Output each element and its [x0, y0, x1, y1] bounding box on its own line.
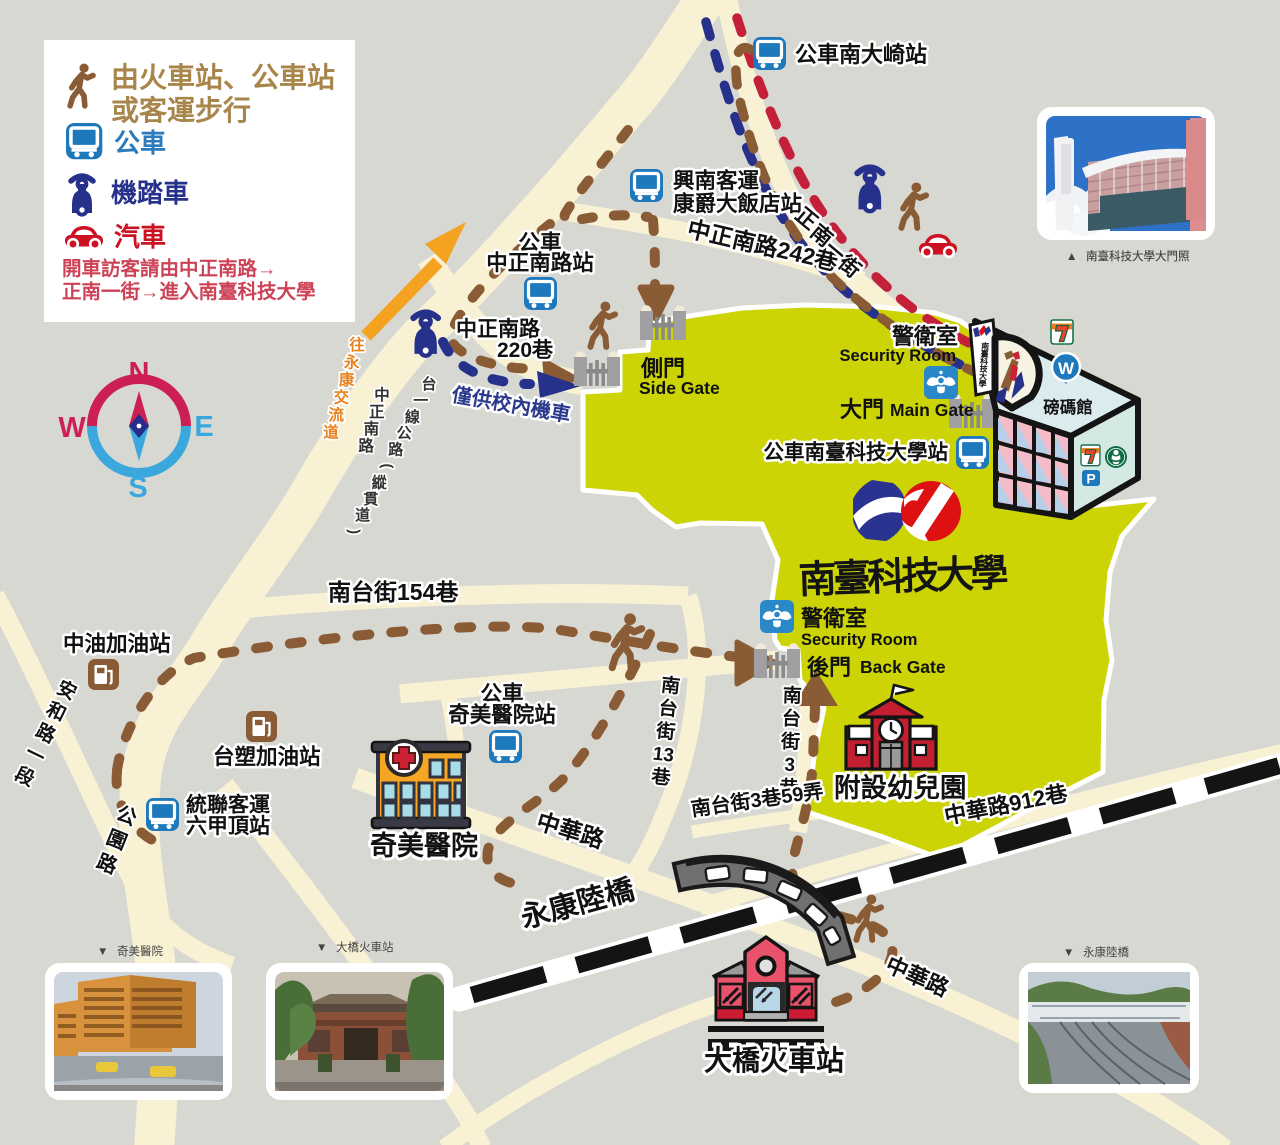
- svg-text:奇美醫院: 奇美醫院: [117, 944, 163, 958]
- svg-text:興南客運: 興南客運: [673, 168, 760, 193]
- svg-text:Side Gate: Side Gate: [639, 378, 720, 398]
- svg-text:奇美醫院: 奇美醫院: [370, 830, 478, 861]
- svg-text:街: 街: [780, 730, 801, 754]
- svg-text:▼: ▼: [316, 942, 327, 954]
- svg-text:▲: ▲: [1066, 251, 1077, 263]
- svg-text:南臺科技大學: 南臺科技大學: [798, 553, 1009, 602]
- svg-text:220巷: 220巷: [497, 338, 554, 362]
- svg-text:南: 南: [782, 685, 802, 708]
- svg-text:奇美醫院站: 奇美醫院站: [448, 702, 556, 727]
- svg-text:▼: ▼: [1063, 947, 1074, 959]
- svg-text:大門: 大門: [840, 397, 884, 422]
- svg-text:中: 中: [374, 385, 390, 404]
- svg-text:警衛室: 警衛室: [891, 324, 958, 349]
- svg-text:N: N: [129, 357, 150, 389]
- svg-text:Back Gate: Back Gate: [860, 657, 946, 677]
- svg-text:南: 南: [364, 419, 380, 438]
- svg-text:公車南大崎站: 公車南大崎站: [795, 42, 927, 67]
- svg-text:警衛室: 警衛室: [800, 606, 867, 631]
- svg-text:永: 永: [343, 353, 360, 372]
- svg-text:道: 道: [355, 506, 370, 524]
- svg-text:大橋火車站: 大橋火車站: [336, 940, 394, 954]
- svg-text:大橋火車站: 大橋火車站: [704, 1045, 844, 1076]
- svg-text:巷: 巷: [649, 765, 672, 789]
- svg-text:或客運步行: 或客運步行: [111, 94, 251, 126]
- svg-text:南臺科技大學大門照: 南臺科技大學大門照: [1086, 249, 1190, 263]
- svg-text:S: S: [128, 472, 147, 504]
- svg-text:公: 公: [397, 425, 412, 442]
- svg-text:統聯客運: 統聯客運: [186, 793, 270, 817]
- svg-text:磅碼館: 磅碼館: [1043, 397, 1093, 417]
- svg-text:P: P: [1086, 471, 1095, 487]
- svg-text:E: E: [194, 411, 213, 443]
- svg-text:3: 3: [784, 755, 795, 776]
- svg-text:貫: 貫: [363, 490, 378, 508]
- svg-text:▼: ▼: [97, 946, 108, 958]
- svg-text:學: 學: [978, 378, 987, 389]
- svg-text:W: W: [58, 412, 86, 444]
- svg-text:開車訪客請由中正南路→: 開車訪客請由中正南路→: [62, 257, 277, 280]
- svg-text:正南一街→進入南臺科技大學: 正南一街→進入南臺科技大學: [62, 280, 316, 303]
- svg-text:路: 路: [388, 441, 404, 459]
- svg-text:六甲頂站: 六甲頂站: [186, 814, 270, 838]
- svg-text:線: 線: [405, 408, 420, 426]
- svg-text:台: 台: [782, 707, 802, 731]
- svg-text:縱: 縱: [372, 473, 388, 491]
- svg-text:附設幼兒園: 附設幼兒園: [834, 773, 967, 803]
- svg-text:機踏車: 機踏車: [111, 178, 189, 208]
- svg-text:台: 台: [658, 696, 679, 721]
- svg-text:南台街154巷: 南台街154巷: [328, 579, 459, 605]
- svg-text:往: 往: [349, 335, 365, 354]
- svg-text:W: W: [1058, 359, 1075, 378]
- svg-text:南: 南: [660, 674, 681, 698]
- svg-text:): ): [345, 529, 362, 534]
- svg-text:正: 正: [369, 404, 385, 421]
- svg-text:台: 台: [421, 375, 436, 393]
- svg-text:公車: 公車: [114, 128, 166, 158]
- svg-text:交: 交: [334, 388, 350, 407]
- svg-text:(: (: [379, 464, 396, 469]
- svg-text:康: 康: [339, 370, 355, 389]
- svg-text:Security Room: Security Room: [801, 631, 917, 649]
- svg-text:中油加油站: 中油加油站: [63, 632, 171, 656]
- svg-text:汽車: 汽車: [114, 222, 166, 252]
- svg-text:中正南路: 中正南路: [456, 317, 541, 341]
- svg-text:後門: 後門: [807, 655, 851, 680]
- svg-text:Main Gate: Main Gate: [890, 400, 974, 420]
- svg-text:街: 街: [654, 719, 676, 744]
- svg-text:道: 道: [323, 423, 339, 442]
- svg-text:公車南臺科技大學站: 公車南臺科技大學站: [764, 440, 949, 464]
- svg-text:路: 路: [358, 436, 374, 455]
- svg-text:中正南路站: 中正南路站: [486, 250, 594, 275]
- svg-text:13: 13: [652, 744, 675, 767]
- svg-text:一: 一: [413, 392, 428, 409]
- svg-text:永康陸橋: 永康陸橋: [1083, 945, 1129, 959]
- svg-text:流: 流: [328, 405, 344, 424]
- svg-text:台塑加油站: 台塑加油站: [213, 744, 321, 769]
- svg-text:Security Room: Security Room: [840, 347, 956, 365]
- svg-text:康爵大飯店站: 康爵大飯店站: [673, 191, 803, 216]
- svg-text:由火車站、公車站: 由火車站、公車站: [111, 62, 335, 93]
